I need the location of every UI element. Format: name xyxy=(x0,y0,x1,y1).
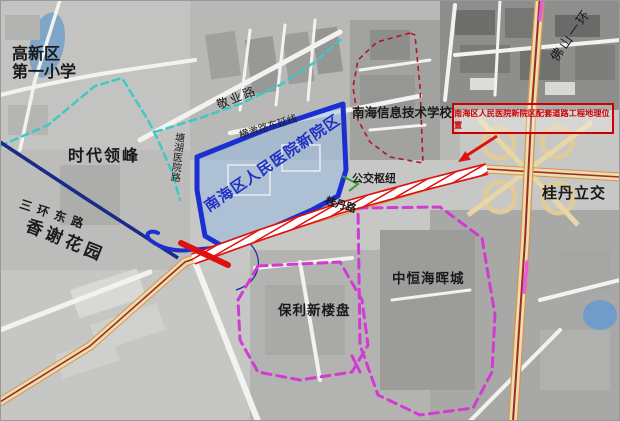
callout-box: 南海区人民医院新院区配套道路工程地理位置 xyxy=(452,103,614,134)
label-zhongheng-city: 中恒海晖城 xyxy=(392,271,465,287)
label-poly-new-estate: 保利新楼盘 xyxy=(278,303,351,319)
callout-text: 南海区人民医院新院区配套道路工程地理位置 xyxy=(454,107,612,131)
map-base xyxy=(0,0,620,421)
pond-east xyxy=(583,300,617,330)
label-guidan-interchange: 桂丹立交 xyxy=(542,186,606,203)
label-info-school: 南海信息技术学校 xyxy=(352,106,452,120)
label-bus-hub: 公交枢纽 xyxy=(352,173,396,186)
label-gaoxin-primary-school: 高新区 第一小学 xyxy=(12,46,76,83)
map-canvas: 高新区 第一小学 时代领峰 三环东路 香谢花园 南海区人民医院新院区 塘湖医院路… xyxy=(0,0,620,421)
label-times-peak: 时代领峰 xyxy=(68,148,140,166)
